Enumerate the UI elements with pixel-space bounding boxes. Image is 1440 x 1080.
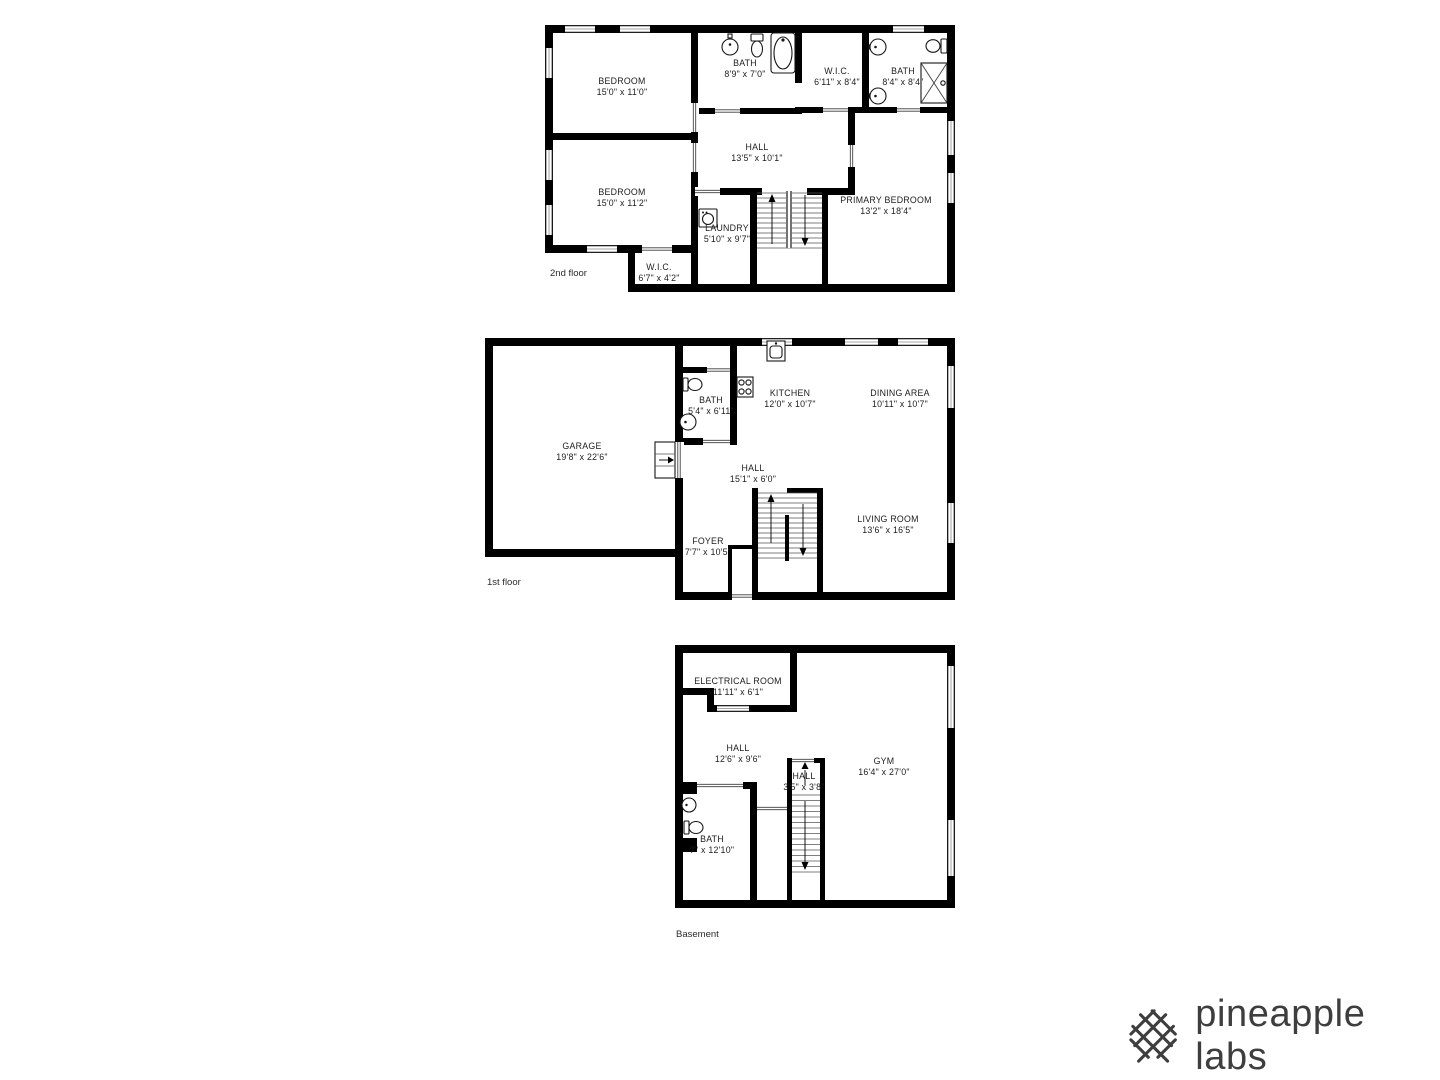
pineapple-lattice-icon — [1128, 1007, 1178, 1065]
room-label-hall: HALL12'6" x 9'6" — [715, 743, 761, 765]
toilet-icon — [926, 39, 947, 53]
sink-icon — [722, 34, 738, 55]
room-label-living-room: LIVING ROOM13'6" x 16'5" — [857, 514, 918, 536]
room-label-kitchen: KITCHEN12'0" x 10'7" — [764, 388, 816, 410]
room-label-dining-area: DINING AREA10'11" x 10'7" — [870, 388, 929, 410]
floorplan-drawing-1st — [485, 338, 955, 600]
room-label-hall: HALL13'5" x 10'1" — [731, 142, 783, 164]
pineapple-labs-logo: pineapple labs — [1128, 993, 1440, 1079]
garage-steps — [655, 442, 675, 478]
room-label-bedroom-2: BEDROOM15'0" x 11'2" — [597, 187, 648, 209]
room-label-bath-2: BATH8'4" x 8'4" — [882, 66, 923, 88]
room-label-gym: GYM16'4" x 27'0" — [858, 756, 910, 778]
room-label-wic-1: W.I.C.6'11" x 8'4" — [814, 66, 860, 88]
floorplan-page: BEDROOM15'0" x 11'0" BEDROOM15'0" x 11'2… — [0, 0, 1440, 1080]
walls — [485, 338, 955, 600]
room-label-primary-bedroom: PRIMARY BEDROOM13'2" x 18'4" — [840, 195, 931, 217]
logo-text: pineapple labs — [1195, 993, 1440, 1079]
room-label-garage: GARAGE19'8" x 22'6" — [556, 441, 608, 463]
room-label-electrical-room: ELECTRICAL ROOM11'11" x 6'1" — [694, 676, 782, 698]
toilet-icon — [683, 378, 702, 391]
toilet-icon — [684, 821, 703, 834]
floor-plan-1st-floor: GARAGE19'8" x 22'6" BATH5'4" x 6'11" KIT… — [485, 338, 955, 600]
floor-plan-basement: ELECTRICAL ROOM11'11" x 6'1" HALL12'6" x… — [675, 645, 955, 908]
floor-label-1st: 1st floor — [487, 577, 521, 588]
room-label-laundry: LAUNDRY5'10" x 9'7" — [704, 223, 750, 245]
shower-icon — [921, 63, 947, 103]
bathtub-icon — [771, 33, 795, 73]
stove-icon — [737, 377, 753, 397]
room-label-bath: BATH5'4" x 6'11" — [688, 395, 734, 417]
sink-icon — [869, 39, 886, 55]
room-label-hall: HALL15'1" x 6'0" — [730, 463, 776, 485]
floor-label-basement: Basement — [676, 929, 719, 940]
kitchen-sink-icon — [767, 341, 785, 361]
sink-icon — [869, 88, 886, 104]
room-label-bath: BATH7" x 12'10" — [690, 834, 734, 856]
floor-plan-2nd-floor: BEDROOM15'0" x 11'0" BEDROOM15'0" x 11'2… — [545, 25, 955, 292]
windows — [762, 338, 955, 543]
floor-label-2nd: 2nd floor — [550, 268, 587, 279]
room-label-foyer: FOYER7'7" x 10'5" — [685, 536, 731, 558]
toilet-icon — [751, 34, 763, 57]
room-label-bedroom-1: BEDROOM15'0" x 11'0" — [597, 76, 648, 98]
room-label-hall-small: HALL3'5" x 3'8" — [783, 771, 824, 793]
staircase — [757, 191, 822, 248]
sink-icon — [682, 798, 696, 812]
door-openings — [642, 103, 920, 254]
room-label-wic-2: W.I.C.6'7" x 4'2" — [638, 262, 679, 284]
room-label-bath-1: BATH8'9" x 7'0" — [724, 58, 765, 80]
staircase — [758, 493, 817, 561]
